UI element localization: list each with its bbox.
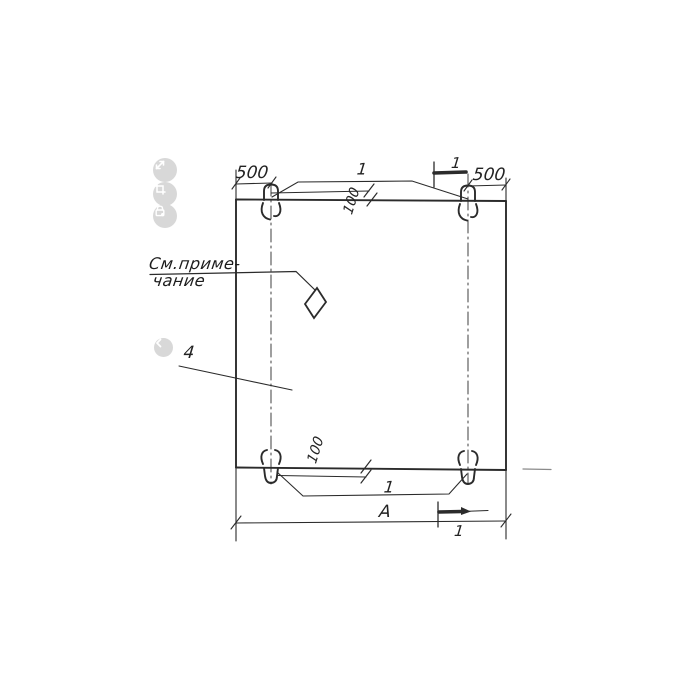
lock-button[interactable] [153, 204, 177, 228]
expand-button[interactable] [153, 158, 177, 182]
dim-label-500-left: 500 [235, 163, 270, 183]
diamond-mark [305, 288, 326, 318]
crop-icon [153, 182, 167, 196]
section-label-bottom: 1 [453, 522, 464, 540]
note-line-2: чание [146, 272, 240, 289]
dim-100-bottom-ticks [361, 460, 371, 483]
part-label-4: 4 [183, 343, 196, 363]
technical-drawing [0, 0, 700, 700]
chevron-left-icon [154, 338, 164, 348]
callout-label-bottom: 1 [383, 478, 395, 497]
dim-label-500-right: 500 [472, 165, 507, 185]
note-line-1: См.приме- [148, 255, 242, 272]
previous-button[interactable] [154, 338, 173, 357]
crop-button[interactable] [153, 182, 177, 206]
callout-label-top: 1 [356, 160, 368, 179]
section-label-top: 1 [450, 154, 461, 172]
reference-dash [523, 469, 551, 470]
panel-outline [236, 200, 506, 471]
drawing-viewer: 500 500 1 1 100 100 1 А 1 4 См.приме- ча… [0, 0, 700, 700]
expand-icon [153, 158, 167, 172]
dim-A [231, 468, 511, 541]
dim-100-top-ticks [364, 184, 377, 206]
lock-icon [153, 204, 167, 218]
note-text: См.приме- чание [146, 255, 242, 289]
dim-label-A: А [378, 502, 392, 522]
bottom-offset-line [278, 476, 366, 478]
loop-centerlines [271, 174, 468, 484]
